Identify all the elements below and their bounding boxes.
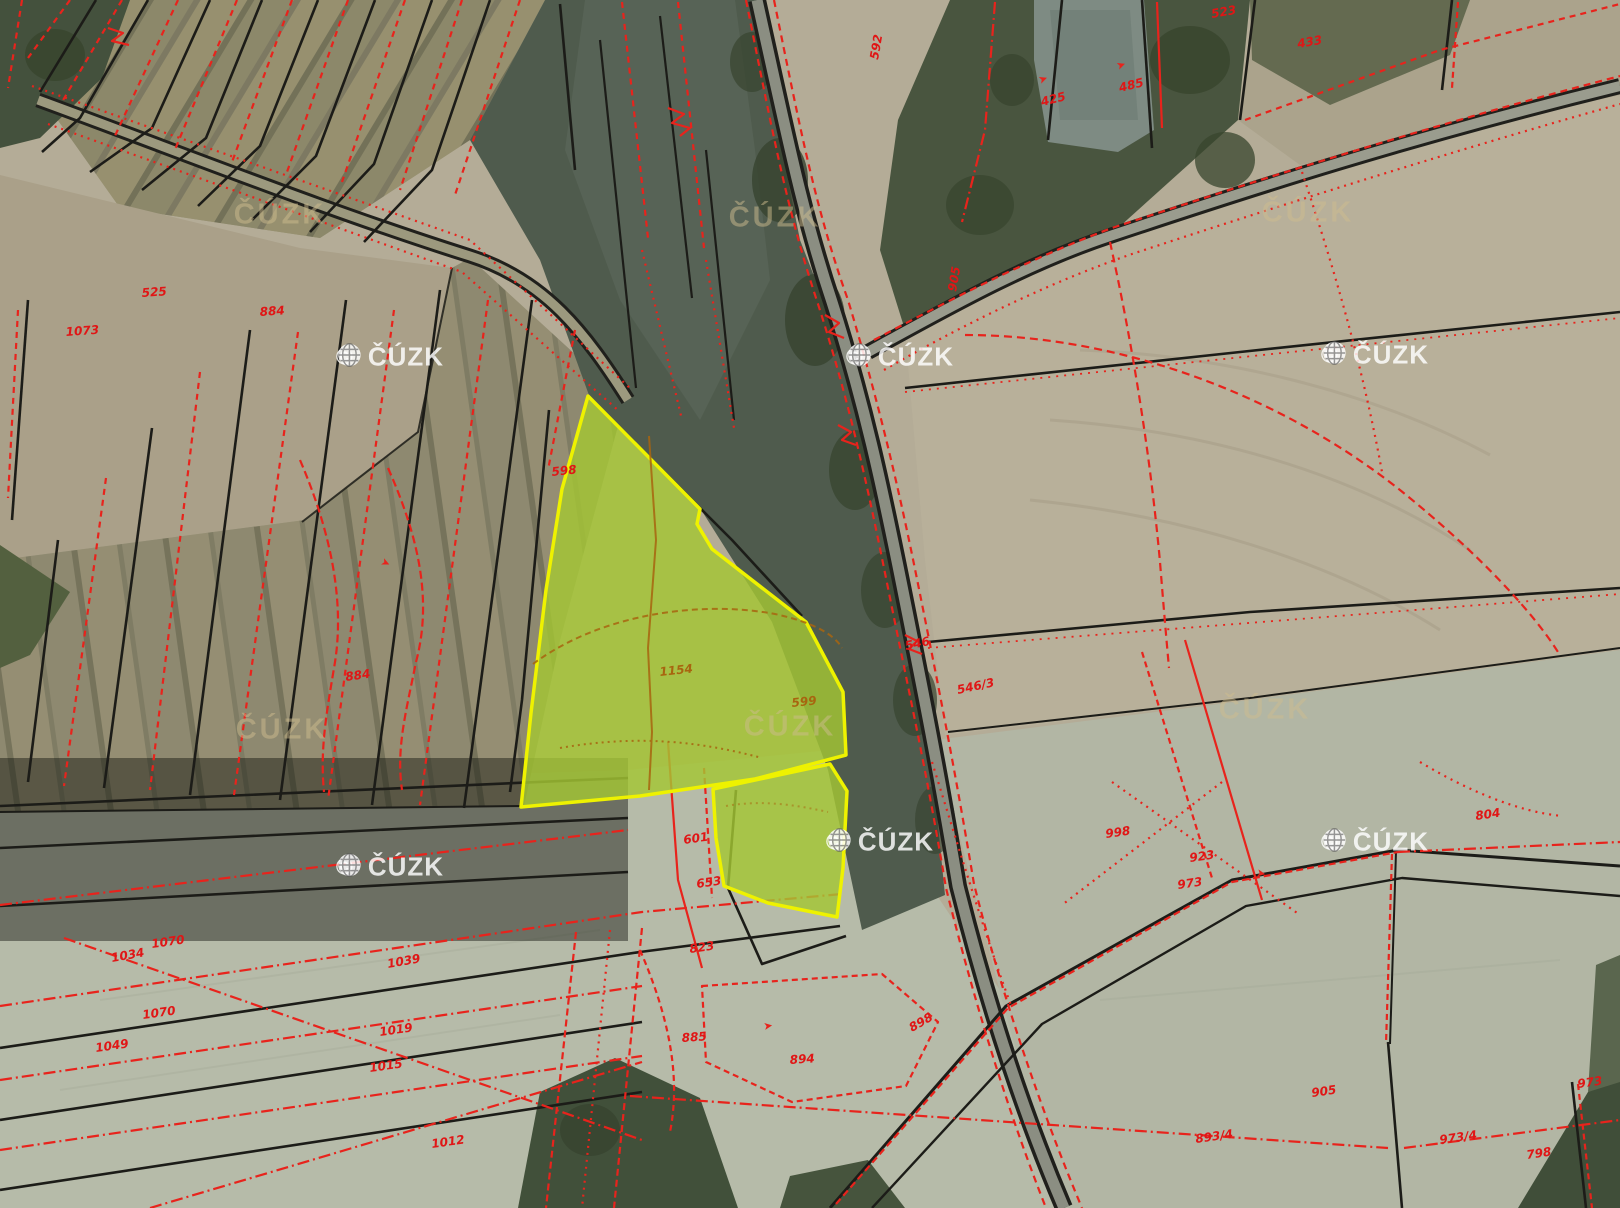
parcel-number: 884 bbox=[259, 303, 285, 319]
parcel-number: 598 bbox=[551, 462, 577, 479]
parcel-number: 894 bbox=[789, 1051, 815, 1067]
parcel-number: 1073 bbox=[65, 323, 99, 339]
parcel-number: 885 bbox=[681, 1029, 707, 1045]
cadastral-map-viewport[interactable]: 5234334254855929051073525884884598546546… bbox=[0, 0, 1620, 1208]
map-canvas[interactable]: 5234334254855929051073525884884598546546… bbox=[0, 0, 1620, 1208]
red-arrow-icon: ➤ bbox=[763, 1019, 774, 1033]
parcel-number: 525 bbox=[141, 284, 167, 300]
parcel-number: 599 bbox=[791, 693, 817, 710]
